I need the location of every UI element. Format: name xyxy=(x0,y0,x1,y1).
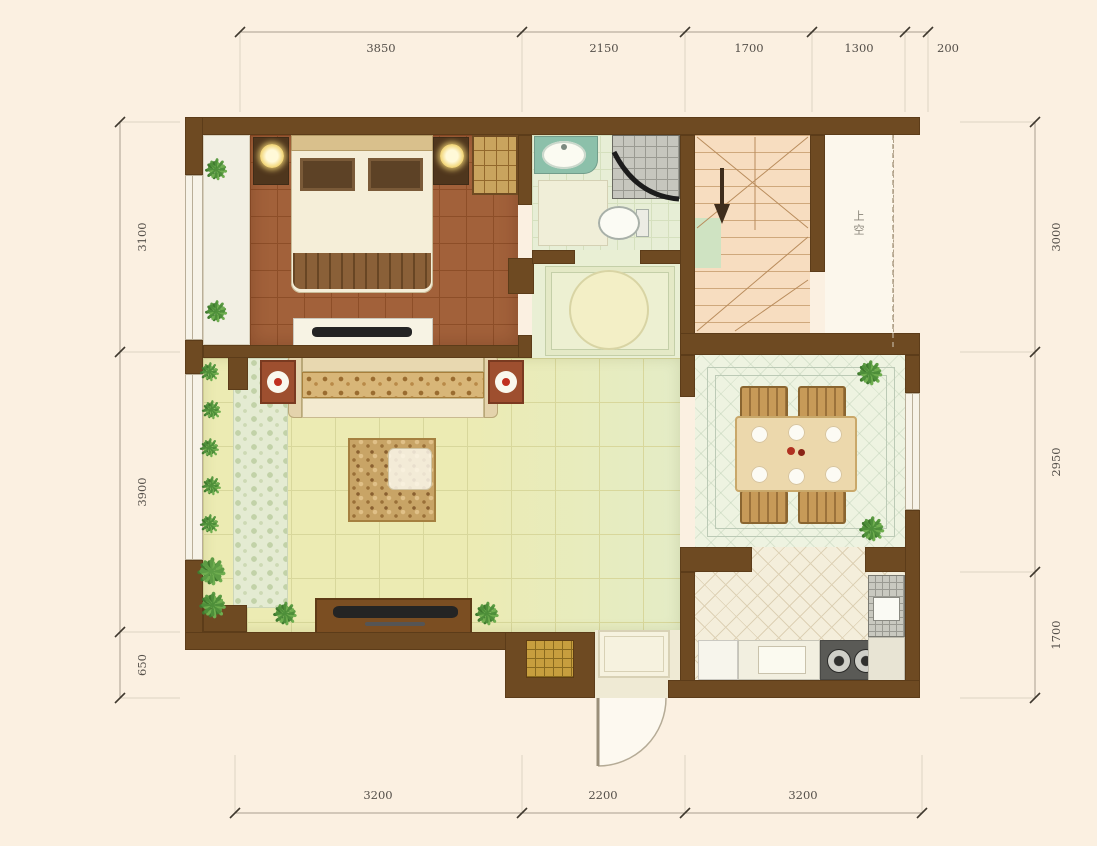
void-area xyxy=(825,135,894,347)
living-tv-icon xyxy=(333,606,458,618)
wall-bedroom-block-b xyxy=(518,335,532,358)
floor-plan-canvas: ❋ ❋ ❋ ❋ ❋ ❋ ❋ ❋ ❋ ❋ ❋ ❋ ❋ xyxy=(0,0,1097,846)
vanity-counter xyxy=(534,136,598,174)
kitchen-counter xyxy=(738,640,820,680)
wall-bath-bottom-left xyxy=(532,250,575,264)
burner-icon xyxy=(827,649,851,673)
wall-right-b xyxy=(905,510,920,698)
dimension-label: 650 xyxy=(135,654,149,676)
double-bed xyxy=(291,135,433,293)
bed-pillow-left xyxy=(300,158,355,191)
dining-chair-bottom-left xyxy=(740,490,788,524)
wall-dining-kitchen-left xyxy=(680,547,752,572)
plate xyxy=(788,424,805,441)
living-area-rug xyxy=(348,438,436,522)
toilet-bowl xyxy=(598,206,640,240)
sofa xyxy=(288,354,498,420)
bed-headboard xyxy=(291,135,433,151)
bed-pillow-right xyxy=(368,158,423,191)
plate xyxy=(825,426,842,443)
bed-blanket xyxy=(293,253,431,289)
wall-stair-left xyxy=(680,135,695,355)
wardrobe xyxy=(472,135,518,195)
doormat xyxy=(598,630,670,678)
window-bedroom-left xyxy=(185,175,203,340)
dimension-label: 2150 xyxy=(589,41,618,55)
plate xyxy=(788,468,805,485)
bedroom-tv-icon xyxy=(312,327,412,337)
bedroom-bay-floor xyxy=(203,135,250,345)
plate xyxy=(751,426,768,443)
side-table-left xyxy=(260,360,296,404)
wall-stair-dining xyxy=(680,333,920,355)
plate xyxy=(825,466,842,483)
stair-landing-patch xyxy=(695,218,721,268)
dimension-label: 1300 xyxy=(844,41,873,55)
wall-left-b xyxy=(185,340,203,374)
dimension-label: 2950 xyxy=(1049,447,1063,476)
wall-top xyxy=(185,117,920,135)
wall-bottom-left-block xyxy=(203,605,247,632)
wall-bedroom-block xyxy=(508,258,534,294)
window-dining-right xyxy=(905,393,920,510)
counter-inset xyxy=(758,646,806,674)
table-centerpiece-icon xyxy=(787,447,795,455)
dimension-label: 3850 xyxy=(366,41,395,55)
wall-living-bottom xyxy=(185,632,545,650)
dining-table xyxy=(735,416,857,492)
hall-round-rug xyxy=(569,270,649,350)
side-table-right xyxy=(488,360,524,404)
dimension-label: 2200 xyxy=(588,788,617,802)
dimension-label: 3200 xyxy=(363,788,392,802)
wall-bedroom-living xyxy=(203,345,532,358)
wall-left-a xyxy=(185,117,203,175)
table-centerpiece-icon xyxy=(798,449,805,456)
toilet xyxy=(598,204,650,242)
hall-rug xyxy=(545,266,675,356)
shoe-cabinet xyxy=(526,640,574,678)
basin-faucet-icon xyxy=(561,144,567,150)
dimension-label: 200 xyxy=(937,41,959,55)
dimension-label: 3200 xyxy=(788,788,817,802)
bedside-lamp-left-icon xyxy=(260,144,284,168)
shower-enclosure xyxy=(612,135,680,199)
kitchen-sink-bowl xyxy=(873,597,900,621)
sofa-seat xyxy=(302,398,484,418)
kitchen-counter-right xyxy=(868,637,905,682)
entry-door xyxy=(598,698,666,766)
dimension-label: 3900 xyxy=(135,477,149,506)
coffee-table xyxy=(388,448,432,490)
dining-chair-top-left xyxy=(740,386,788,420)
bedroom-tv-cabinet xyxy=(293,318,433,347)
bedside-lamp-right-icon xyxy=(440,144,464,168)
kitchen-appliance xyxy=(698,640,738,680)
wall-dining-left-top xyxy=(680,355,695,397)
window-living-left xyxy=(185,374,203,560)
sofa-cushions xyxy=(302,372,484,398)
tv-stand-bar xyxy=(365,622,425,626)
dimension-label: 1700 xyxy=(1049,620,1063,649)
wall-kitchen-bottom xyxy=(668,680,920,698)
dimension-label: 1700 xyxy=(734,41,763,55)
flower-left-icon xyxy=(274,378,282,386)
living-tv-cabinet xyxy=(315,598,472,634)
dining-chair-top-right xyxy=(798,386,846,420)
void-area-label: 上空 xyxy=(850,210,866,238)
wall-right-a xyxy=(905,355,920,393)
dimension-label: 3000 xyxy=(1049,222,1063,251)
flower-right-icon xyxy=(502,378,510,386)
kitchen-sink-unit xyxy=(868,575,905,637)
wall-stair-right xyxy=(810,135,825,272)
dimension-label: 3100 xyxy=(135,222,149,251)
dining-chair-bottom-right xyxy=(798,490,846,524)
wall-bedroom-bath xyxy=(518,135,532,205)
plate xyxy=(751,466,768,483)
